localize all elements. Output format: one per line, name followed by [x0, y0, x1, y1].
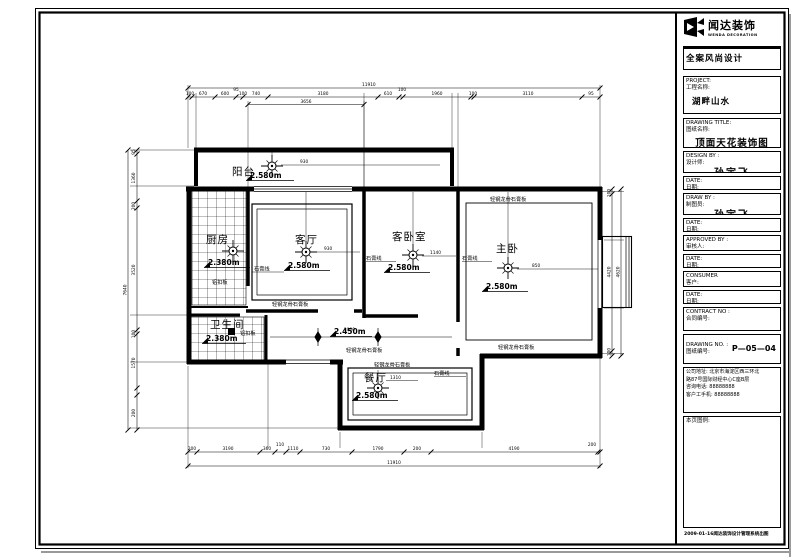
sheet-border [36, 9, 789, 549]
svg-text:7640: 7640 [123, 284, 129, 295]
note-master-ceiling-top: 轻钢龙骨石膏板 [490, 195, 527, 203]
svg-text:740: 740 [252, 91, 260, 97]
field-contract-no: CONTRACT NO : 合同编号: [683, 307, 781, 331]
svg-text:600: 600 [221, 91, 229, 97]
cad-sheet-screenshot: { "title_block": { "logo_cn": "闻达装饰", "l… [0, 0, 791, 557]
wenda-logo-icon [683, 17, 705, 37]
svg-text:1310: 1310 [390, 375, 401, 381]
field-date-4: DATE: 日期: [683, 290, 781, 304]
note-bath-material: 铝扣板 [240, 329, 256, 337]
customer-phone: 客户工手机: 88888888 [686, 392, 778, 400]
svg-text:1790: 1790 [373, 446, 384, 452]
svg-text:200: 200 [188, 446, 196, 452]
slogan-box: 全案风尚设计 [683, 48, 781, 70]
room-label-bath: 卫生间 [210, 318, 245, 331]
field-draw-by: DRAW BY : 制图员: 孙宇飞 [683, 193, 781, 215]
svg-text:100: 100 [469, 91, 477, 97]
note-dining-ceiling: 轻钢龙骨石膏板 [374, 361, 411, 369]
company-address-line2: 路87号国际财经中心C座B层 [686, 377, 778, 385]
note-hall-ceiling: 轻钢龙骨石膏板 [346, 346, 383, 354]
floor-plan-canvas: 阳台 厨房 客厅 客卧室 主卧 卫生间 餐厅 2.580m 2.380m 2.5… [0, 0, 791, 557]
svg-text:930: 930 [300, 159, 308, 165]
svg-text:1000: 1000 [344, 327, 355, 333]
svg-text:2.580m: 2.580m [250, 171, 282, 180]
legend-box: 本页图例: [683, 416, 781, 528]
walls [186, 148, 602, 430]
svg-text:2.380m: 2.380m [206, 334, 238, 343]
logo-text-en: WENDA DECORATION [708, 33, 758, 37]
draftsman-name: 孙宇飞 [686, 210, 778, 215]
openings [254, 184, 605, 366]
svg-text:3656: 3656 [301, 99, 312, 105]
svg-text:1570: 1570 [131, 357, 137, 368]
svg-text:850: 850 [532, 263, 540, 269]
svg-text:1360: 1360 [131, 172, 137, 183]
note-dining-molding: 石膏线 [434, 369, 450, 377]
company-phone: 咨询电话: 88888888 [686, 384, 778, 392]
svg-text:3190: 3190 [223, 446, 234, 452]
svg-text:100: 100 [131, 330, 137, 338]
svg-text:670: 670 [199, 91, 207, 97]
company-info: 公司地址: 北京市海淀区西三环北 路87号国际财经中心C座B层 咨询电话: 88… [683, 367, 781, 413]
svg-text:3180: 3180 [318, 91, 329, 97]
svg-text:1960: 1960 [432, 91, 443, 97]
note-master-molding: 石膏线 [462, 254, 478, 262]
svg-text:95: 95 [131, 149, 137, 155]
field-drawing-title: DRAWING TITLE: 图纸名称: 顶面天花装饰图 [683, 118, 781, 148]
drawing-number: P—05—04 [732, 344, 776, 354]
svg-text:100: 100 [398, 87, 406, 93]
svg-text:200: 200 [588, 442, 596, 448]
svg-text:200: 200 [131, 202, 137, 210]
logo-text-cn: 闻达装饰 [708, 17, 758, 33]
svg-text:4190: 4190 [509, 446, 520, 452]
svg-text:200: 200 [413, 446, 421, 452]
svg-text:200: 200 [131, 409, 137, 417]
svg-text:11910: 11910 [387, 460, 401, 466]
company-logo: 闻达装饰 WENDA DECORATION [683, 14, 781, 48]
drawing-title: 顶面天花装饰图 [686, 138, 778, 148]
room-label-dining: 餐厅 [364, 371, 387, 384]
svg-text:3520: 3520 [131, 264, 137, 275]
svg-text:930: 930 [324, 246, 332, 252]
designer-name: 孙宇飞 [686, 168, 778, 173]
svg-text:2.380m: 2.380m [208, 258, 240, 267]
svg-text:1110: 1110 [288, 446, 299, 452]
dim-bottom: 200 3190 360 110 1110 730 1790 200 4190 … [186, 442, 603, 469]
svg-text:2.580m: 2.580m [486, 282, 518, 291]
svg-text:110: 110 [276, 442, 284, 448]
svg-text:4420: 4420 [607, 266, 613, 277]
field-project: PROJECT: 工程名称: 湖畔山水 [683, 76, 781, 114]
field-date-3: DATE: 日期: [683, 254, 781, 268]
svg-text:2.580m: 2.580m [356, 391, 388, 400]
title-block-footer: 2009-01-16闻达装饰设计管理系统出图 [684, 531, 780, 537]
svg-text:1140: 1140 [430, 250, 441, 256]
note-kitchen-material: 铝扣板 [212, 278, 228, 286]
svg-text:100: 100 [607, 189, 613, 197]
downlight-icon-hall-2 [374, 328, 381, 346]
sheet-shadow-bottom [41, 551, 791, 553]
note-living-molding: 石膏线 [254, 265, 270, 273]
svg-text:100: 100 [186, 91, 194, 97]
field-date-1: DATE: 日期: [683, 176, 781, 190]
room-label-guest: 客卧室 [392, 230, 427, 243]
field-date-2: DATE: 日期: [683, 218, 781, 232]
lamp-icon-master [497, 257, 519, 279]
svg-text:100: 100 [607, 348, 613, 356]
svg-text:360: 360 [263, 446, 271, 452]
dim-right: 100 4420 100 4620 [607, 187, 624, 359]
svg-text:730: 730 [322, 446, 330, 452]
svg-text:100: 100 [239, 91, 247, 97]
room-label-master: 主卧 [496, 242, 519, 255]
room-label-kitchen: 厨房 [206, 233, 229, 246]
svg-text:3110: 3110 [523, 91, 534, 97]
downlight-icon-hall-1 [314, 328, 321, 346]
field-approved-by: APPROVED BY : 审核人: [683, 235, 781, 251]
dim-left: 95 1360 200 3520 100 1570 200 7640 [123, 148, 140, 433]
svg-text:610: 610 [384, 91, 392, 97]
project-name: 湖畔山水 [692, 97, 778, 108]
svg-text:2.580m: 2.580m [388, 263, 420, 272]
note-master-ceiling-bottom: 轻钢龙骨石膏板 [498, 343, 535, 351]
svg-text:2.580m: 2.580m [288, 261, 320, 270]
legend-label: 本页图例: [686, 418, 778, 425]
field-consumer: CONSUMER 客户: [683, 271, 781, 287]
title-block: 闻达装饰 WENDA DECORATION 全案风尚设计 PROJECT: 工程… [678, 12, 786, 545]
svg-text:4620: 4620 [616, 266, 622, 277]
note-living-ceiling: 轻钢龙骨石膏板 [272, 300, 309, 308]
svg-text:11910: 11910 [362, 82, 376, 88]
room-label-living: 客厅 [295, 233, 318, 246]
note-guest-molding: 石膏线 [366, 254, 382, 262]
field-design-by: DESIGN BY : 设计师: 孙宇飞 [683, 151, 781, 173]
field-drawing-no: DRAWING NO. : 图纸编号: P—05—04 [683, 334, 781, 364]
svg-text:95: 95 [588, 91, 594, 97]
company-address-line1: 公司地址: 北京市海淀区西三环北 [686, 369, 778, 377]
